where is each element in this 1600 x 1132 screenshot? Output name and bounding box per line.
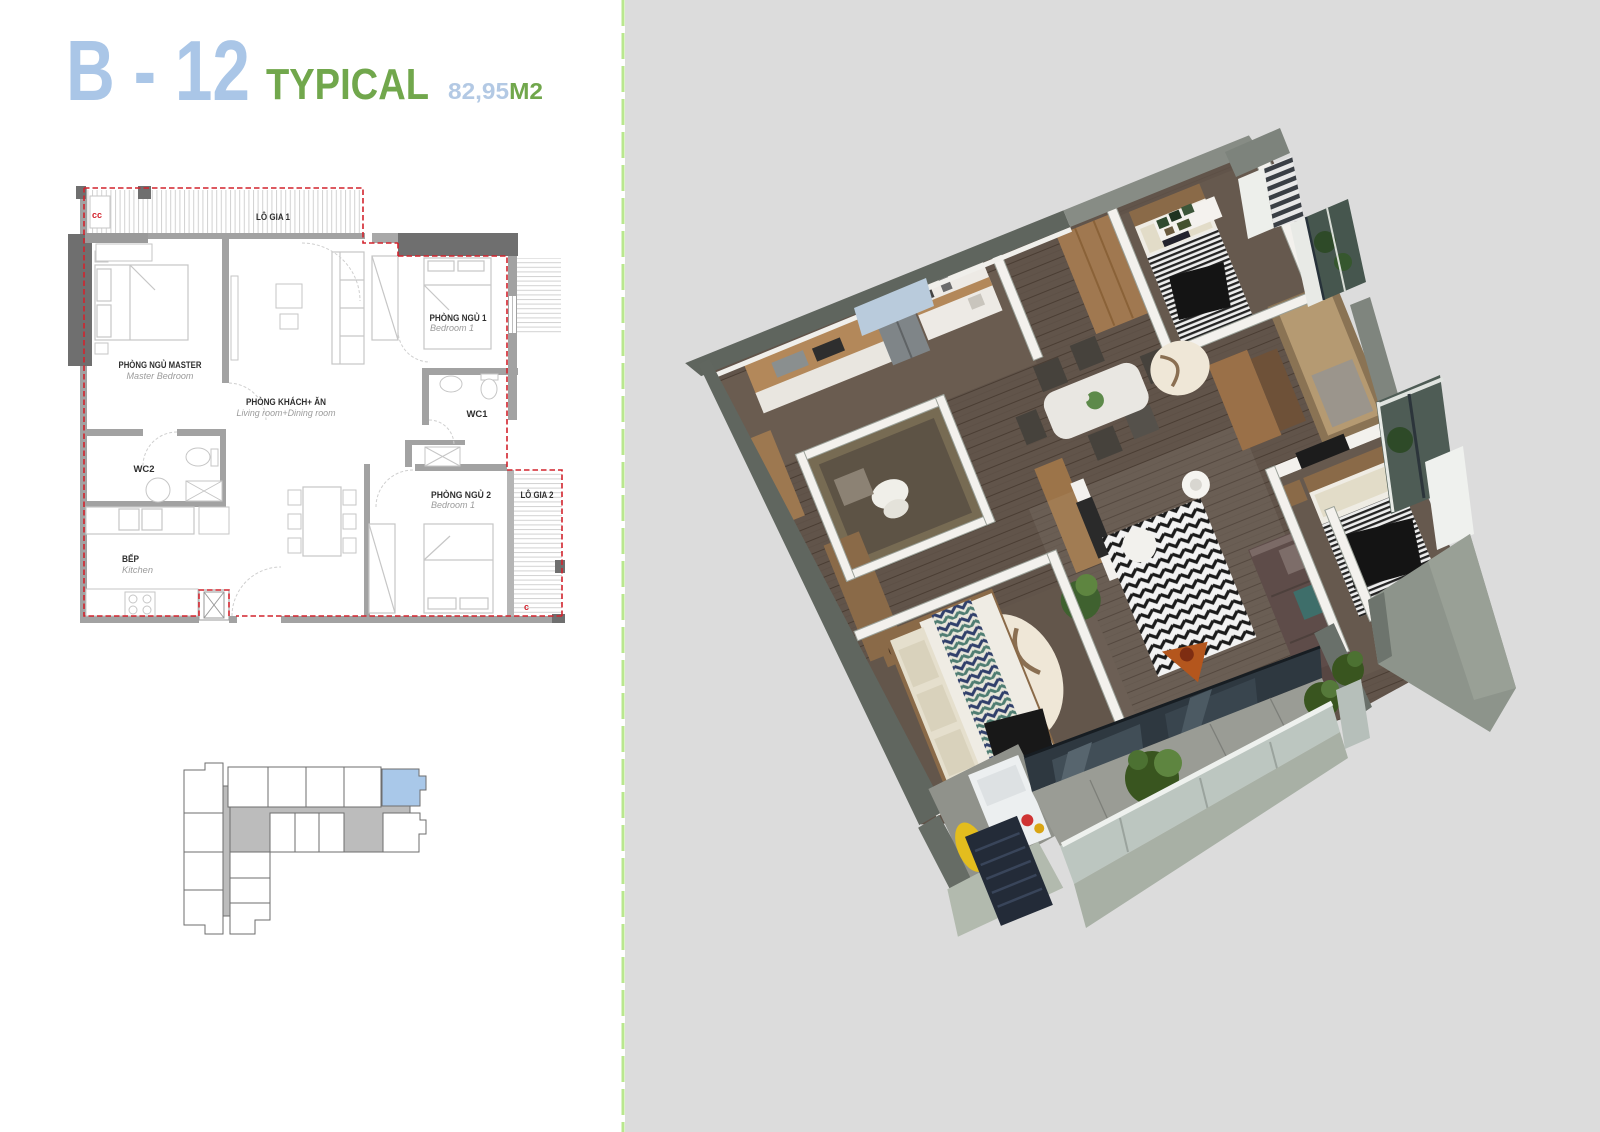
svg-text:PHÒNG KHÁCH+ ĂN: PHÒNG KHÁCH+ ĂN [246, 396, 326, 408]
svg-text:Bedroom 1: Bedroom 1 [430, 323, 474, 334]
svg-text:cc: cc [92, 210, 102, 220]
svg-text:WC2: WC2 [134, 464, 155, 475]
svg-text:TYPICAL: TYPICAL [266, 60, 429, 109]
svg-text:c: c [524, 602, 529, 612]
svg-text:Bedroom 1: Bedroom 1 [431, 500, 475, 511]
svg-text:WC1: WC1 [467, 409, 489, 420]
svg-text:BẾP: BẾP [122, 554, 140, 565]
svg-text:Living room+Dining room: Living room+Dining room [237, 408, 336, 419]
svg-text:LÔ GIA 2: LÔ GIA 2 [521, 489, 554, 501]
svg-text:PHÒNG NGỦ MASTER: PHÒNG NGỦ MASTER [119, 359, 202, 371]
svg-text:82,95M2: 82,95M2 [448, 78, 543, 104]
svg-text:Master Bedroom: Master Bedroom [127, 371, 194, 382]
svg-text:B - 12: B - 12 [66, 24, 250, 119]
svg-text:Kitchen: Kitchen [122, 565, 153, 576]
svg-text:LÔ GIA 1: LÔ GIA 1 [256, 211, 291, 223]
